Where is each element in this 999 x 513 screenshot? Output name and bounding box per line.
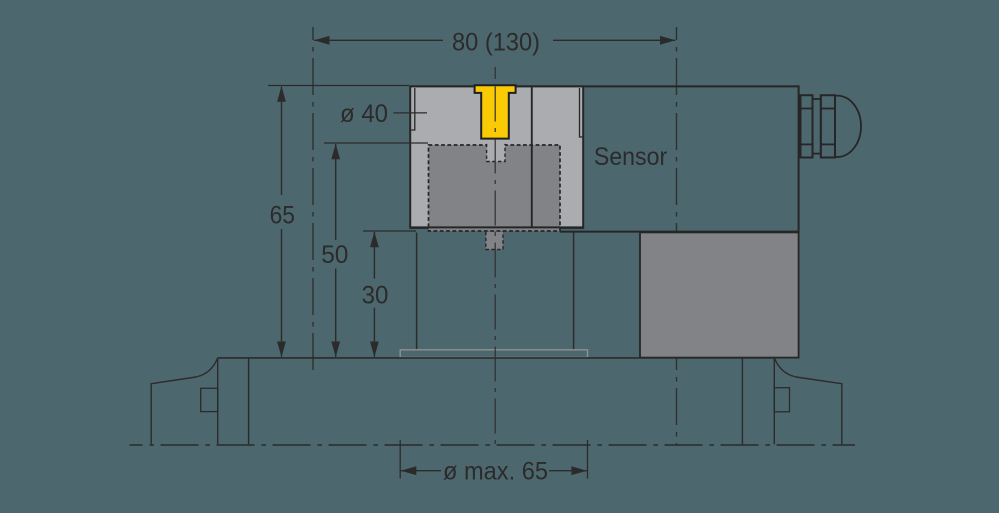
svg-text:80 (130): 80 (130) <box>452 29 540 57</box>
svg-text:50: 50 <box>321 241 348 269</box>
svg-text:Sensor: Sensor <box>594 143 667 171</box>
svg-text:65: 65 <box>270 202 295 230</box>
svg-text:ø max. 65: ø max. 65 <box>443 458 548 486</box>
svg-text:30: 30 <box>362 282 389 310</box>
svg-text:ø 40: ø 40 <box>340 100 388 128</box>
